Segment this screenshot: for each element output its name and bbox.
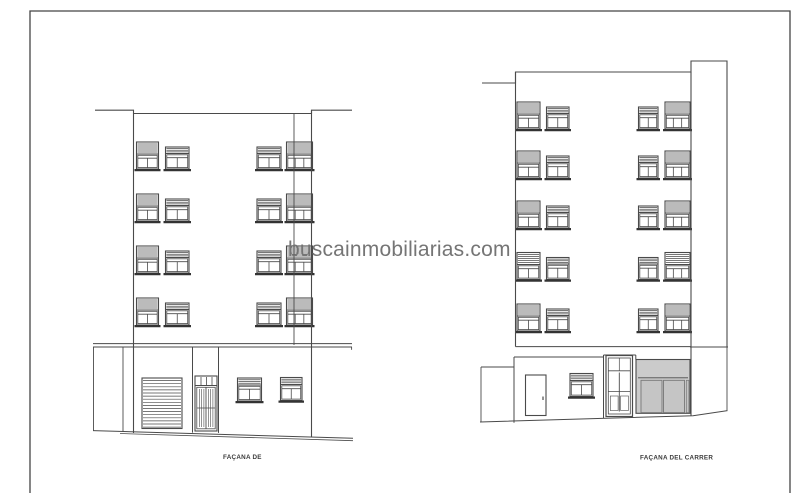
facade-drawing: buscainmobiliarias.com FAÇANA DE FAÇANA … — [0, 0, 800, 493]
garage-door — [636, 360, 690, 414]
window — [637, 206, 661, 229]
right-facade-label: FAÇANA DEL CARRER — [640, 455, 713, 462]
blueprint-image: buscainmobiliarias.com FAÇANA DE FAÇANA … — [0, 0, 800, 493]
garage-door-leaf — [641, 380, 662, 412]
window — [637, 258, 661, 281]
window — [637, 107, 661, 130]
left-facade-label: FAÇANA DE — [223, 454, 262, 461]
window — [637, 309, 661, 332]
watermark-text: buscainmobiliarias.com — [288, 238, 511, 261]
garage-door-leaf — [664, 380, 685, 412]
window — [637, 156, 661, 179]
garage-door-strip — [686, 380, 689, 412]
